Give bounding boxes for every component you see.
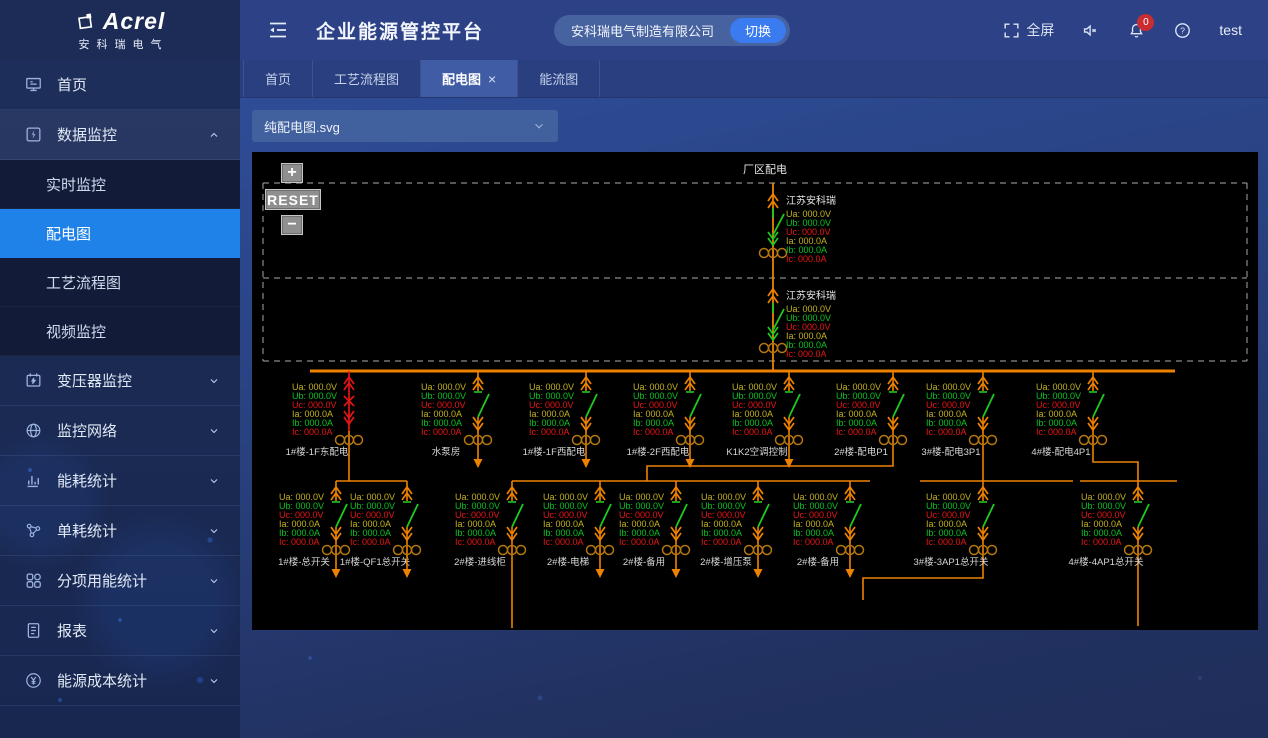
company-selector[interactable]: 安科瑞电气制造有限公司 切换 [554,15,790,46]
grid-icon [24,571,43,590]
sidebar: Acrel 安科瑞电气 首页数据监控实时监控配电图工艺流程图视频监控变压器监控监… [0,0,240,738]
share-nodes-icon [24,521,43,540]
tab-label: 首页 [265,69,291,88]
sidebar-item-label: 报表 [57,620,87,641]
sidebar-submenu: 实时监控配电图工艺流程图视频监控 [0,160,240,356]
sidebar-item-video-monitoring[interactable]: 视频监控 [0,307,240,356]
svg-text:Ic: 000.0A: Ic: 000.0A [786,254,827,264]
zoom-in-button[interactable]: + [281,163,303,183]
fullscreen-icon [1002,21,1021,40]
svg-text:Ic: 000.0A: Ic: 000.0A [633,427,674,437]
distribution-diagram-canvas[interactable]: + RESET − 厂区配电江苏安科瑞Ua: 000.0VUb: 000.0VU… [252,152,1258,630]
sidebar-item-label: 分项用能统计 [57,570,147,591]
username[interactable]: test [1219,22,1242,38]
fullscreen-button[interactable]: 全屏 [1002,20,1054,40]
svg-text:Ic: 000.0A: Ic: 000.0A [786,349,827,359]
svg-text:Ic: 000.0A: Ic: 000.0A [701,537,742,547]
topbar: 企业能源管控平台 安科瑞电气制造有限公司 切换 全屏 [240,0,1268,60]
svg-text:1#楼-QF1总开关: 1#楼-QF1总开关 [340,556,411,568]
chevron-down-icon [208,625,220,637]
tab-bar: 首页工艺流程图配电图×能流图 [240,60,1268,98]
svg-text:2#楼-电梯: 2#楼-电梯 [547,556,590,568]
mute-icon[interactable] [1081,21,1100,40]
sidebar-item-home[interactable]: 首页 [0,60,240,110]
svg-text:2#楼-备用: 2#楼-备用 [797,556,839,568]
svg-text:3#楼-3AP1总开关: 3#楼-3AP1总开关 [914,556,989,568]
svg-text:Ic: 000.0A: Ic: 000.0A [836,427,877,437]
svg-text:水泵房: 水泵房 [432,446,461,458]
sidebar-item-label: 监控网络 [57,420,117,441]
tab-home[interactable]: 首页 [243,60,313,97]
svg-text:2#楼-配电P1: 2#楼-配电P1 [834,446,888,458]
svg-text:厂区配电: 厂区配电 [743,163,787,176]
reset-view-button[interactable]: RESET [265,189,321,210]
svg-text:Ic: 000.0A: Ic: 000.0A [1036,427,1077,437]
svg-text:1#楼-2F西配电: 1#楼-2F西配电 [627,446,690,458]
tab-label: 工艺流程图 [334,69,399,88]
svg-text:2#楼-进线柜: 2#楼-进线柜 [454,556,506,568]
svg-text:Ic: 000.0A: Ic: 000.0A [292,427,333,437]
svg-text:Ic: 000.0A: Ic: 000.0A [455,537,496,547]
svg-text:2#楼-增压泵: 2#楼-增压泵 [700,556,752,568]
tab-distribution[interactable]: 配电图× [421,60,518,97]
svg-text:4#楼-4AP1总开关: 4#楼-4AP1总开关 [1069,556,1144,568]
report-icon [24,621,43,640]
svg-text:1#楼-1F西配电: 1#楼-1F西配电 [523,446,586,458]
network-icon [24,421,43,440]
zoom-out-button[interactable]: − [281,215,303,235]
notification-badge: 0 [1137,14,1154,31]
svg-text:Ic: 000.0A: Ic: 000.0A [350,537,391,547]
sidebar-item-label: 变压器监控 [57,370,132,391]
sidebar-item-label: 单耗统计 [57,520,117,541]
brand-subtitle: 安科瑞电气 [72,36,169,52]
chevron-down-icon [208,525,220,537]
svg-text:Ic: 000.0A: Ic: 000.0A [926,537,967,547]
svg-text:1#楼-总开关: 1#楼-总开关 [278,556,330,568]
svg-text:江苏安科瑞: 江苏安科瑞 [786,289,836,302]
chevron-down-icon [208,675,220,687]
svg-text:3#楼-配电3P1: 3#楼-配电3P1 [921,446,980,458]
data-monitor-icon [24,125,43,144]
bar-chart-icon [24,471,43,490]
svg-text:Ic: 000.0A: Ic: 000.0A [1081,537,1122,547]
sidebar-item-monitoring-network[interactable]: 监控网络 [0,406,240,456]
sidebar-item-subitem-energy-stats[interactable]: 分项用能统计 [0,556,240,606]
fullscreen-label: 全屏 [1026,20,1054,40]
tab-process-flow[interactable]: 工艺流程图 [313,60,421,97]
single-line-diagram: 厂区配电江苏安科瑞Ua: 000.0VUb: 000.0VUc: 000.0VI… [252,152,1258,630]
chevron-down-icon [208,575,220,587]
tab-label: 能流图 [539,69,578,88]
svg-text:1#楼-1F东配电: 1#楼-1F东配电 [286,446,349,458]
brand-name: Acrel [103,8,166,35]
svg-text:Ic: 000.0A: Ic: 000.0A [926,427,967,437]
sidebar-item-distribution-diagram[interactable]: 配电图 [0,209,240,258]
chevron-down-icon [208,425,220,437]
chevron-down-icon [532,119,546,133]
svg-text:Ic: 000.0A: Ic: 000.0A [279,537,320,547]
tab-energy-flow[interactable]: 能流图 [518,60,600,97]
sidebar-item-label: 能耗统计 [57,470,117,491]
chevron-down-icon [208,475,220,487]
sidebar-item-transformer-monitoring[interactable]: 变压器监控 [0,356,240,406]
sidebar-item-data-monitoring[interactable]: 数据监控 [0,110,240,160]
sidebar-nav: 首页数据监控实时监控配电图工艺流程图视频监控变压器监控监控网络能耗统计单耗统计分… [0,60,240,706]
chevron-down-icon [208,375,220,387]
svg-text:江苏安科瑞: 江苏安科瑞 [786,194,836,207]
svg-text:4#楼-配电4P1: 4#楼-配电4P1 [1031,446,1090,458]
svg-text:Ic: 000.0A: Ic: 000.0A [543,537,584,547]
diagram-file-select[interactable]: 纯配电图.svg [252,110,558,142]
logo: Acrel 安科瑞电气 [0,0,240,60]
cost-icon [24,671,43,690]
svg-text:Ic: 000.0A: Ic: 000.0A [529,427,570,437]
svg-text:Ic: 000.0A: Ic: 000.0A [793,537,834,547]
svg-text:2#楼-备用: 2#楼-备用 [623,556,665,568]
svg-text:K1K2空调控制: K1K2空调控制 [726,446,787,458]
acrel-logo-icon [75,11,97,33]
close-icon[interactable]: × [488,72,496,86]
svg-text:Ic: 000.0A: Ic: 000.0A [619,537,660,547]
sidebar-item-label: 数据监控 [57,124,117,145]
company-name: 安科瑞电气制造有限公司 [571,21,714,40]
sidebar-item-label: 能源成本统计 [57,670,147,691]
collapse-sidebar-icon[interactable] [266,18,290,42]
help-icon[interactable]: ? [1173,21,1192,40]
sidebar-item-realtime-monitoring[interactable]: 实时监控 [0,160,240,209]
tab-label: 配电图 [442,69,481,88]
diagram-file-name: 纯配电图.svg [264,117,340,136]
svg-text:?: ? [1181,25,1186,35]
home-icon [24,75,43,94]
content-area: 纯配电图.svg + RESET − 厂区配电江苏安科瑞Ua: 000.0VUb… [240,98,1268,738]
transformer-icon [24,371,43,390]
chevron-up-icon [208,129,220,141]
sidebar-item-reports[interactable]: 报表 [0,606,240,656]
app-window: Acrel 安科瑞电气 首页数据监控实时监控配电图工艺流程图视频监控变压器监控监… [0,0,1268,738]
page-title: 企业能源管控平台 [316,17,484,44]
switch-company-button[interactable]: 切换 [730,18,786,43]
sidebar-item-label: 首页 [57,74,87,95]
sidebar-item-energy-consumption-stats[interactable]: 能耗统计 [0,456,240,506]
svg-text:Ic: 000.0A: Ic: 000.0A [732,427,773,437]
svg-text:Ic: 000.0A: Ic: 000.0A [421,427,462,437]
sidebar-item-unit-consumption-stats[interactable]: 单耗统计 [0,506,240,556]
sidebar-item-energy-cost-stats[interactable]: 能源成本统计 [0,656,240,706]
notifications-button[interactable]: 0 [1127,21,1146,40]
sidebar-item-process-flow-diagram[interactable]: 工艺流程图 [0,258,240,307]
